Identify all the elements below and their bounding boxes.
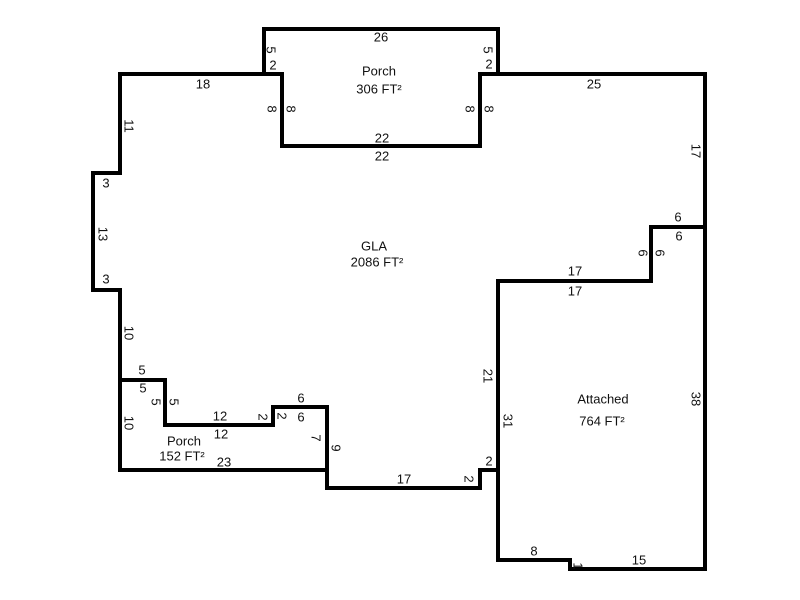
area-size-label-gla: 2086 FT² (351, 255, 404, 270)
dimension-label: 5 (167, 398, 182, 405)
dimension-label: 8 (482, 105, 497, 112)
dimension-label: 38 (689, 392, 704, 406)
area-name-label-attached-garage: Attached (577, 392, 628, 407)
dimension-label: 17 (689, 144, 704, 158)
dimension-label: 6 (297, 391, 304, 406)
dimension-label: 2 (462, 475, 477, 482)
dimension-label: 12 (214, 427, 228, 442)
dimension-label: 15 (632, 553, 646, 568)
dimension-label: 25 (587, 77, 601, 92)
dimension-label: 8 (463, 105, 478, 112)
dimension-label: 5 (481, 46, 496, 53)
dimension-label: 12 (213, 409, 227, 424)
dimension-label: 8 (530, 544, 537, 559)
dimension-label: 26 (374, 30, 388, 45)
dimension-label: 3 (102, 272, 109, 287)
dimension-label: 5 (138, 363, 145, 378)
dimension-label: 17 (568, 284, 582, 299)
dimension-label: 6 (653, 249, 668, 256)
dimension-label: 2 (485, 57, 492, 72)
dimension-label: 2 (256, 413, 271, 420)
dimension-label: 6 (636, 249, 651, 256)
dimension-label: 17 (397, 472, 411, 487)
dimension-label: 23 (217, 455, 231, 470)
dimension-label: 9 (329, 444, 344, 451)
area-size-label-porch-top: 306 FT² (356, 82, 402, 97)
dimension-label: 10 (122, 326, 137, 340)
dimension-label: 21 (481, 369, 496, 383)
dimension-label: 6 (675, 229, 682, 244)
dimension-label: 10 (122, 416, 137, 430)
dimension-label: 8 (284, 105, 299, 112)
dimension-label: 18 (196, 77, 210, 92)
dimension-label: 6 (297, 410, 304, 425)
dimension-label: 6 (674, 210, 681, 225)
floor-plan-sketch-page: Porch306 FT²GLA2086 FT²Porch152 FT²Attac… (0, 0, 800, 600)
dimension-label: 31 (501, 414, 516, 428)
dimension-label: 2 (485, 454, 492, 469)
dimension-label: 5 (139, 381, 146, 396)
dimension-label: 2 (269, 58, 276, 73)
dimension-label: 8 (265, 105, 280, 112)
dimension-label: 22 (375, 131, 389, 146)
dimension-label: 2 (275, 412, 290, 419)
dimension-label: 5 (264, 46, 279, 53)
dimension-label: 22 (375, 149, 389, 164)
dimension-label: 11 (122, 119, 137, 133)
dimension-label: 3 (102, 176, 109, 191)
dimension-label: 5 (149, 398, 164, 405)
area-size-label-porch-bottom: 152 FT² (159, 449, 205, 464)
dimension-label: 13 (96, 227, 111, 241)
dimension-label: 1 (571, 562, 586, 569)
floor-plan-sketch: Porch306 FT²GLA2086 FT²Porch152 FT²Attac… (0, 0, 800, 600)
dimension-label: 17 (568, 264, 582, 279)
dimension-label: 7 (309, 434, 324, 441)
area-name-label-gla: GLA (361, 239, 387, 254)
area-name-label-porch-top: Porch (362, 64, 396, 79)
area-name-label-porch-bottom: Porch (167, 434, 201, 449)
area-size-label-attached-garage: 764 FT² (579, 414, 625, 429)
